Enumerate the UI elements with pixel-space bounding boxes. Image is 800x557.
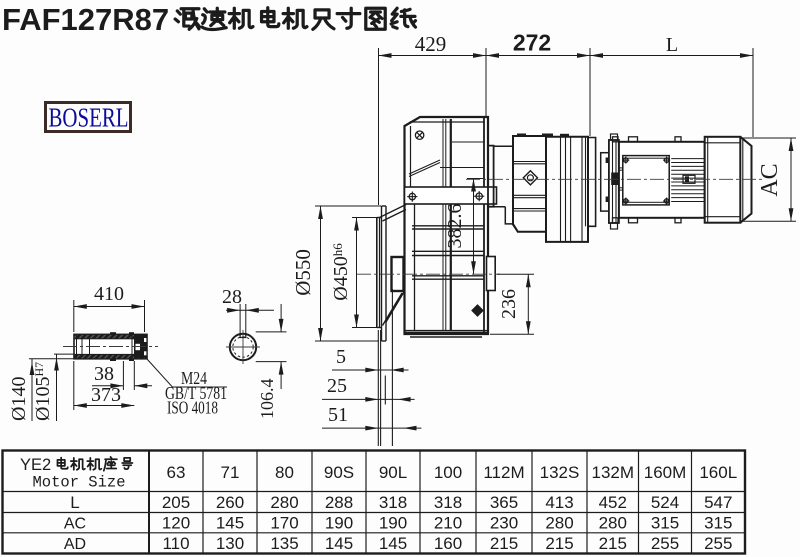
svg-text:135: 135 xyxy=(270,534,298,553)
svg-text:190: 190 xyxy=(379,514,407,533)
svg-text:272: 272 xyxy=(513,30,551,56)
svg-text:5: 5 xyxy=(336,346,346,368)
svg-text:110: 110 xyxy=(162,534,189,553)
svg-text:132M: 132M xyxy=(591,463,634,482)
svg-text:145: 145 xyxy=(216,514,244,533)
svg-text:215: 215 xyxy=(545,534,573,553)
svg-text:160L: 160L xyxy=(699,463,737,482)
svg-text:AC: AC xyxy=(757,163,783,196)
svg-text:L: L xyxy=(666,34,678,56)
svg-text:215: 215 xyxy=(599,534,627,553)
svg-text:315: 315 xyxy=(651,514,679,533)
svg-text:Motor Size: Motor Size xyxy=(32,474,125,492)
svg-text:51: 51 xyxy=(328,404,348,426)
svg-text:25: 25 xyxy=(327,375,347,397)
svg-text:205: 205 xyxy=(162,493,190,512)
svg-text:260: 260 xyxy=(216,493,244,512)
svg-text:145: 145 xyxy=(325,534,353,553)
svg-text:524: 524 xyxy=(651,493,679,512)
svg-text:547: 547 xyxy=(704,493,732,512)
svg-text:255: 255 xyxy=(651,534,679,553)
svg-text:80: 80 xyxy=(275,463,294,482)
svg-text:Ø140: Ø140 xyxy=(8,377,30,421)
svg-text:288: 288 xyxy=(325,493,353,512)
svg-text:280: 280 xyxy=(545,514,573,533)
svg-text:71: 71 xyxy=(221,463,240,482)
svg-text:Ø550: Ø550 xyxy=(291,249,315,296)
svg-text:YE2: YE2 xyxy=(20,456,51,474)
svg-text:318: 318 xyxy=(434,493,462,512)
svg-text:255: 255 xyxy=(704,534,732,553)
svg-text:130: 130 xyxy=(216,534,244,553)
svg-text:120: 120 xyxy=(162,514,190,533)
svg-text:ISO 4018: ISO 4018 xyxy=(167,398,218,418)
svg-text:318: 318 xyxy=(379,493,407,512)
svg-text:410: 410 xyxy=(94,283,124,305)
svg-text:38: 38 xyxy=(94,363,114,385)
svg-text:160: 160 xyxy=(434,534,462,553)
svg-text:210: 210 xyxy=(434,514,462,533)
svg-text:413: 413 xyxy=(545,493,573,512)
svg-text:FAF127R87: FAF127R87 xyxy=(2,2,169,37)
svg-text:452: 452 xyxy=(599,493,627,512)
svg-text:28: 28 xyxy=(222,286,242,308)
svg-text:AC: AC xyxy=(64,516,86,533)
svg-text:BOSERL: BOSERL xyxy=(49,103,129,133)
svg-text:382.6: 382.6 xyxy=(444,204,466,249)
svg-text:106.4: 106.4 xyxy=(257,379,277,420)
svg-text:215: 215 xyxy=(490,534,518,553)
svg-text:L: L xyxy=(70,493,79,512)
svg-text:63: 63 xyxy=(167,463,186,482)
svg-text:365: 365 xyxy=(490,493,518,512)
svg-text:280: 280 xyxy=(270,493,298,512)
svg-text:373: 373 xyxy=(91,384,121,406)
svg-text:315: 315 xyxy=(704,514,732,533)
svg-text:100: 100 xyxy=(434,463,462,482)
svg-text:90S: 90S xyxy=(324,463,354,482)
svg-text:AD: AD xyxy=(64,536,86,553)
svg-text:90L: 90L xyxy=(379,463,407,482)
svg-text:236: 236 xyxy=(498,289,520,319)
svg-text:429: 429 xyxy=(415,32,447,56)
svg-text:230: 230 xyxy=(490,514,518,533)
svg-text:132S: 132S xyxy=(540,463,580,482)
svg-text:170: 170 xyxy=(270,514,298,533)
svg-text:145: 145 xyxy=(379,534,407,553)
svg-text:160M: 160M xyxy=(644,463,687,482)
svg-text:112M: 112M xyxy=(483,463,524,482)
svg-text:280: 280 xyxy=(599,514,627,533)
svg-text:190: 190 xyxy=(325,514,353,533)
